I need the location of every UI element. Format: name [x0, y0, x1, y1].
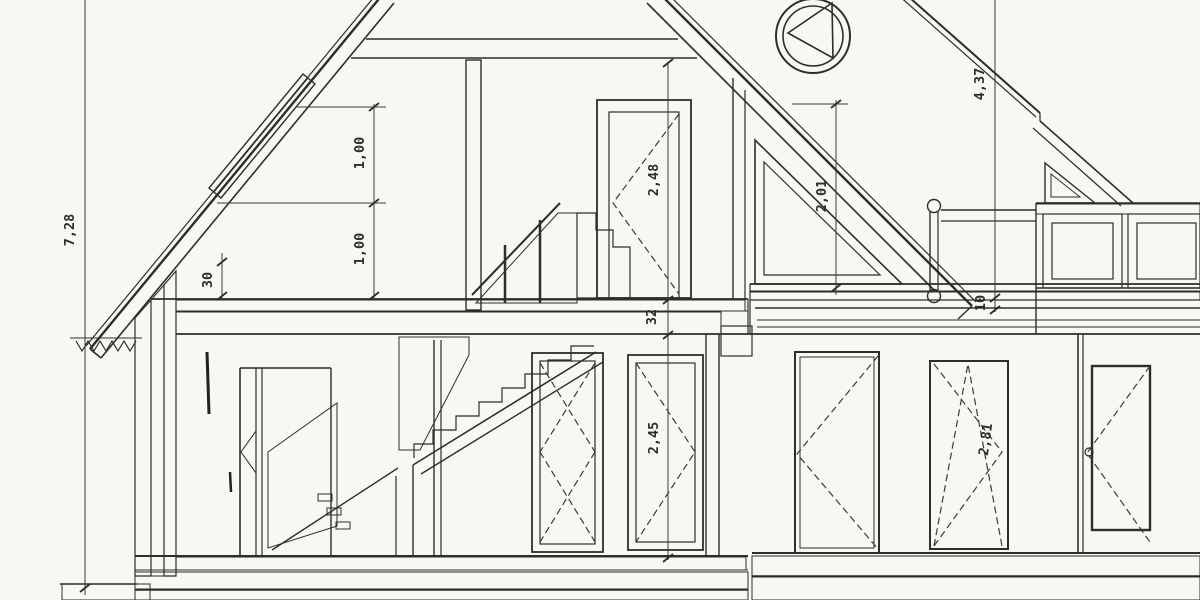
- ground-floor-doors: [532, 334, 719, 556]
- basement-stair-area: [207, 352, 350, 556]
- dim-label-slab: 32: [644, 309, 660, 325]
- dim-label-balcony-step: 10: [973, 295, 989, 311]
- handrail: [472, 203, 560, 295]
- roof-vent-symbol: [776, 0, 850, 73]
- scanned-section-drawing: 7,28 1,00 1,00 30 2,48 32 2,45 2,01: [0, 0, 1200, 600]
- dimension-ridge: 4,37 10: [972, 0, 1000, 314]
- tilt-turn-window: [930, 361, 1008, 549]
- left-roof-slope: [70, 0, 394, 358]
- beam-block: [721, 326, 752, 356]
- door-swing-dashes: [1087, 366, 1152, 545]
- section-drawing: 7,28 1,00 1,00 30 2,48 32 2,45 2,01: [0, 0, 1200, 600]
- stair-railing-upper: [476, 213, 577, 303]
- basement-stair-railing: [268, 403, 337, 548]
- pen-mark: [207, 352, 209, 414]
- dim-label-knee-wall: 30: [200, 272, 216, 288]
- dim-label-annex-height: 2,81: [976, 422, 996, 456]
- dim-label-attic-height: 2,48: [646, 164, 662, 197]
- pen-mark-small: [230, 472, 231, 492]
- dim-label-ridge: 4,37: [972, 68, 988, 101]
- annex-window-1: [1043, 214, 1122, 288]
- basement-stair-stringer: [272, 468, 398, 550]
- dimension-total-height: 7,28: [62, 0, 90, 595]
- door-right: [628, 355, 703, 550]
- dim-label-ground-height: 2,45: [646, 422, 662, 455]
- staircase: [272, 337, 603, 556]
- door-left: [532, 353, 603, 552]
- door-swing-mark: [241, 431, 256, 473]
- rear-gable: [776, 0, 1133, 206]
- exterior-wall-left: [135, 271, 176, 576]
- dim-label-skylight-bottom: 1,00: [352, 233, 368, 266]
- foundation-and-ground: [60, 553, 1200, 600]
- annex-door: [795, 352, 879, 553]
- annex-entry-door: [1092, 366, 1150, 530]
- dimension-knee-wall: 30: [200, 253, 227, 300]
- door-swing-dashes: [797, 356, 878, 549]
- door-swing-dashes: [540, 363, 595, 542]
- dim-label-skylight-top: 1,00: [352, 137, 368, 170]
- right-roof-slope: [647, 0, 976, 319]
- door-swing-dashes: [613, 114, 679, 294]
- post-ball-top: [928, 200, 941, 213]
- dim-label-total-height: 7,28: [62, 214, 78, 247]
- upper-floor-slab: [151, 299, 752, 356]
- dimension-annex-height: 2,81: [976, 422, 996, 456]
- door-swing-dashes: [636, 363, 695, 542]
- attic-door: [597, 100, 691, 298]
- dim-label-gable-window: 2,01: [814, 180, 830, 213]
- post: [466, 60, 481, 310]
- dimension-skylight: 1,00 1,00: [217, 103, 386, 300]
- annex-ground-floor: [795, 334, 1152, 553]
- annex-window-2: [1128, 214, 1200, 288]
- stair-top-steps: [577, 213, 630, 298]
